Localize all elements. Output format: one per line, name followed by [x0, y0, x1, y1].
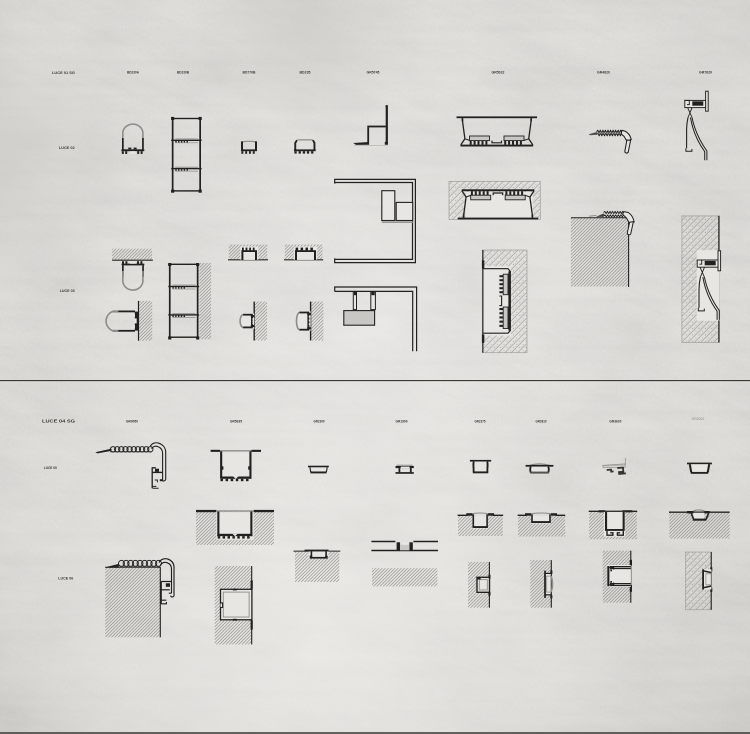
svg-text:LUCE 02: LUCE 02 — [59, 145, 76, 150]
svg-text:GR7820: GR7820 — [699, 70, 713, 75]
svg-text:GR5022: GR5022 — [492, 70, 506, 75]
svg-text:GR5745: GR5745 — [367, 70, 381, 75]
svg-text:GR5635: GR5635 — [230, 419, 243, 424]
svg-text:BD235: BD235 — [300, 70, 312, 75]
svg-text:LUCE 05: LUCE 05 — [44, 466, 57, 470]
svg-text:BD230B: BD230B — [177, 70, 189, 75]
svg-text:GR2300: GR2300 — [314, 419, 326, 424]
svg-text:GR3810: GR3810 — [536, 419, 548, 424]
svg-text:LUCE 03: LUCE 03 — [60, 288, 76, 293]
svg-text:LUCE 04 SG: LUCE 04 SG — [42, 419, 75, 424]
svg-text:BD230A: BD230A — [127, 70, 139, 75]
svg-text:GR4820: GR4820 — [597, 70, 611, 75]
svg-text:LUCE 01 SG: LUCE 01 SG — [52, 70, 75, 75]
svg-text:GR0050: GR0050 — [126, 419, 139, 424]
svg-text:GR2021: GR2021 — [691, 417, 704, 421]
svg-text:GR3620: GR3620 — [609, 419, 622, 424]
svg-text:GR1900: GR1900 — [396, 419, 409, 424]
svg-text:LUCE 06: LUCE 06 — [58, 576, 74, 581]
svg-text:BD770B: BD770B — [243, 70, 256, 75]
svg-text:GR2375: GR2375 — [475, 419, 487, 424]
